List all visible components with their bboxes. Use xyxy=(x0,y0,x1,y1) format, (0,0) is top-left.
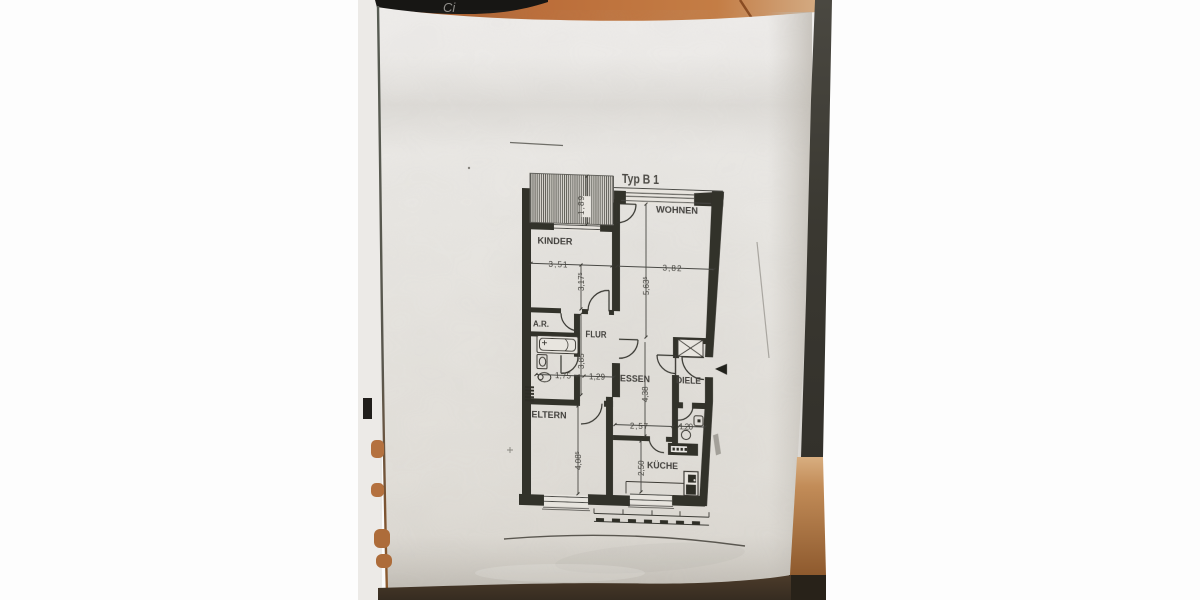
svg-text:1,75: 1,75 xyxy=(555,371,572,381)
svg-text:2,50: 2,50 xyxy=(637,460,646,476)
svg-text:ESSEN: ESSEN xyxy=(620,373,650,385)
svg-text:WOHNEN: WOHNEN xyxy=(656,204,698,216)
svg-text:1,89: 1,89 xyxy=(577,195,586,215)
svg-text:FLUR: FLUR xyxy=(586,329,607,341)
svg-text:ELTERN: ELTERN xyxy=(532,409,567,421)
svg-text:1,29: 1,29 xyxy=(589,372,606,382)
svg-text:A.R.: A.R. xyxy=(533,318,549,329)
svg-text:DIELE: DIELE xyxy=(676,375,701,387)
svg-text:KINDER: KINDER xyxy=(538,236,573,248)
svg-text:3,85: 3,85 xyxy=(577,353,586,369)
svg-text:Typ B 1: Typ B 1 xyxy=(622,172,659,187)
svg-text:3,51: 3,51 xyxy=(549,260,569,270)
svg-text:4,38: 4,38 xyxy=(641,386,650,402)
svg-text:KÜCHE: KÜCHE xyxy=(647,460,678,472)
svg-text:3,82: 3,82 xyxy=(663,264,683,274)
svg-text:2,57: 2,57 xyxy=(630,422,649,432)
svg-text:1,20: 1,20 xyxy=(679,422,694,431)
